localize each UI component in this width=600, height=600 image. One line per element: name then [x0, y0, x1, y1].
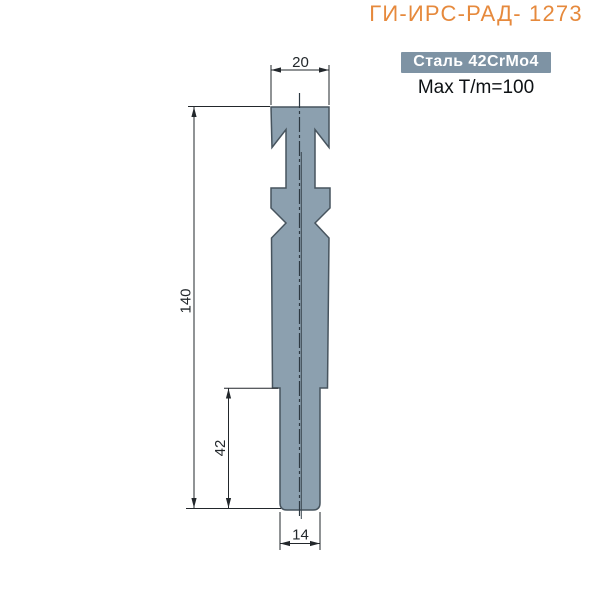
page-title: ГИ-ИРС-РАД- 1273	[352, 1, 600, 27]
dim-tip-width-value: 14	[292, 527, 309, 544]
material-badge: Сталь 42CrMo4	[401, 52, 551, 73]
dim-lower-height-value: 42	[212, 440, 229, 457]
dim-lower-height	[224, 388, 278, 508]
dim-arrow-up	[226, 389, 231, 399]
dim-top-width-value: 20	[292, 54, 309, 71]
dim-arrow-down	[191, 498, 196, 508]
punch-profile	[271, 107, 330, 510]
dim-total-height	[186, 107, 281, 509]
dim-total-height-value: 140	[178, 288, 195, 313]
dim-arrow-down	[226, 498, 231, 508]
dim-arrow-left	[280, 541, 290, 546]
dim-arrow-left	[271, 67, 281, 72]
dim-arrow-right	[310, 541, 320, 546]
max-load-label: Max T/m=100	[352, 77, 600, 99]
dim-arrow-up	[191, 107, 196, 117]
title-block: ГИ-ИРС-РАД- 1273 Сталь 42CrMo4 Max T/m=1…	[352, 0, 600, 99]
dim-arrow-right	[319, 67, 329, 72]
